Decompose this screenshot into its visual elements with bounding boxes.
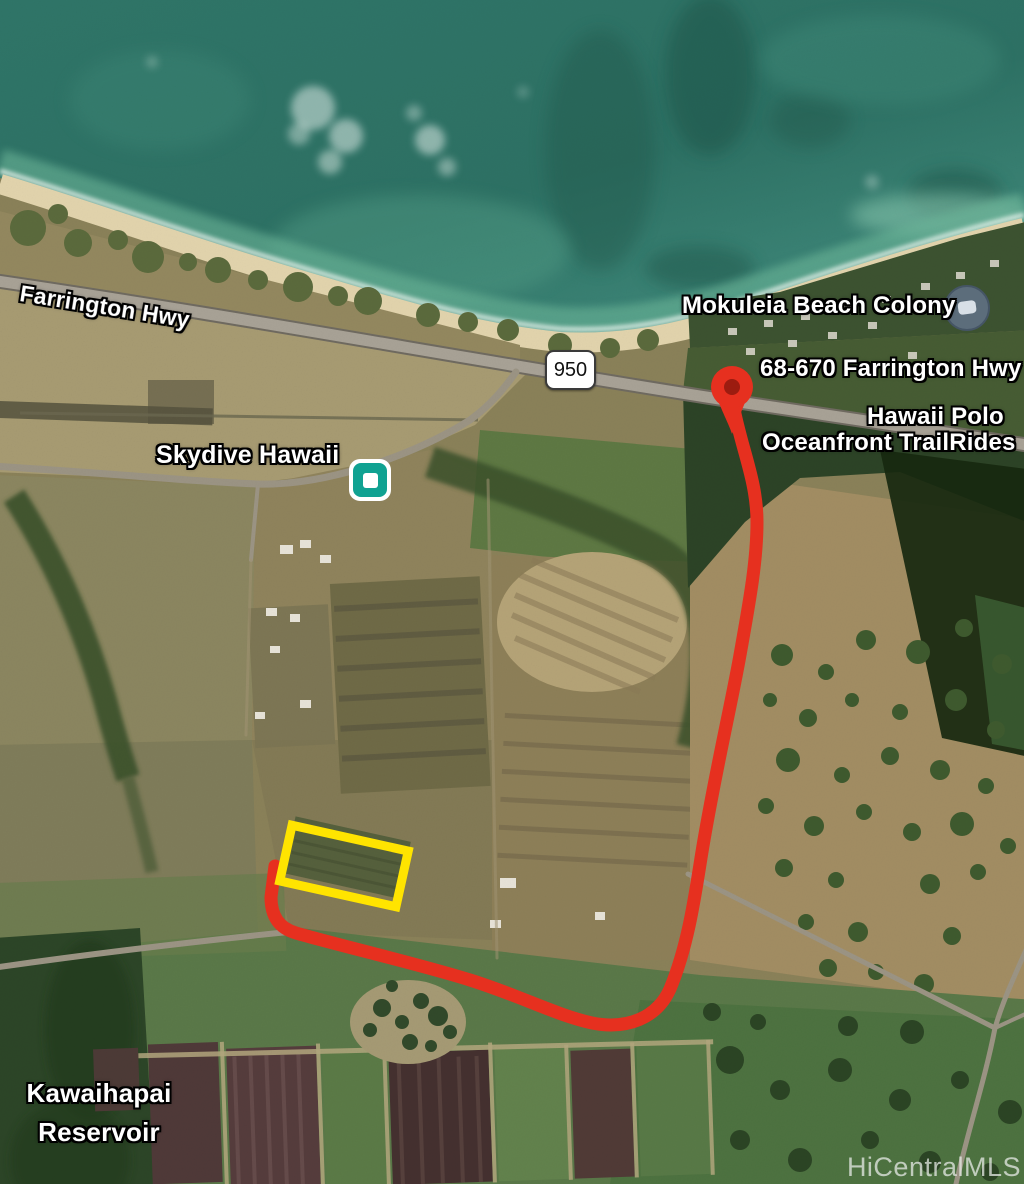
route-shield-number: 950 bbox=[554, 359, 587, 382]
polo-label-line1: Hawaii Polo bbox=[867, 403, 1004, 431]
hicentralmls-watermark: HiCentralMLS bbox=[847, 1152, 1021, 1183]
map-terrain-graphic bbox=[0, 0, 1024, 1184]
satellite-map: Farrington Hwy 950 Mokuleia Beach Colony… bbox=[0, 0, 1024, 1184]
route-950-shield: 950 bbox=[545, 350, 596, 390]
skydive-label: Skydive Hawaii bbox=[156, 441, 339, 470]
reservoir-label-line2: Reservoir bbox=[14, 1113, 184, 1152]
reservoir-label: Kawaihapai Reservoir bbox=[14, 1074, 184, 1152]
polo-label-line2: Oceanfront TrailRides bbox=[762, 429, 1016, 457]
skydive-activity-icon bbox=[349, 459, 391, 501]
property-address-label: 68-670 Farrington Hwy bbox=[760, 355, 1022, 383]
reservoir-label-line1: Kawaihapai bbox=[14, 1074, 184, 1113]
grain-texture bbox=[0, 0, 1024, 1184]
beach-colony-label: Mokuleia Beach Colony bbox=[682, 292, 956, 320]
